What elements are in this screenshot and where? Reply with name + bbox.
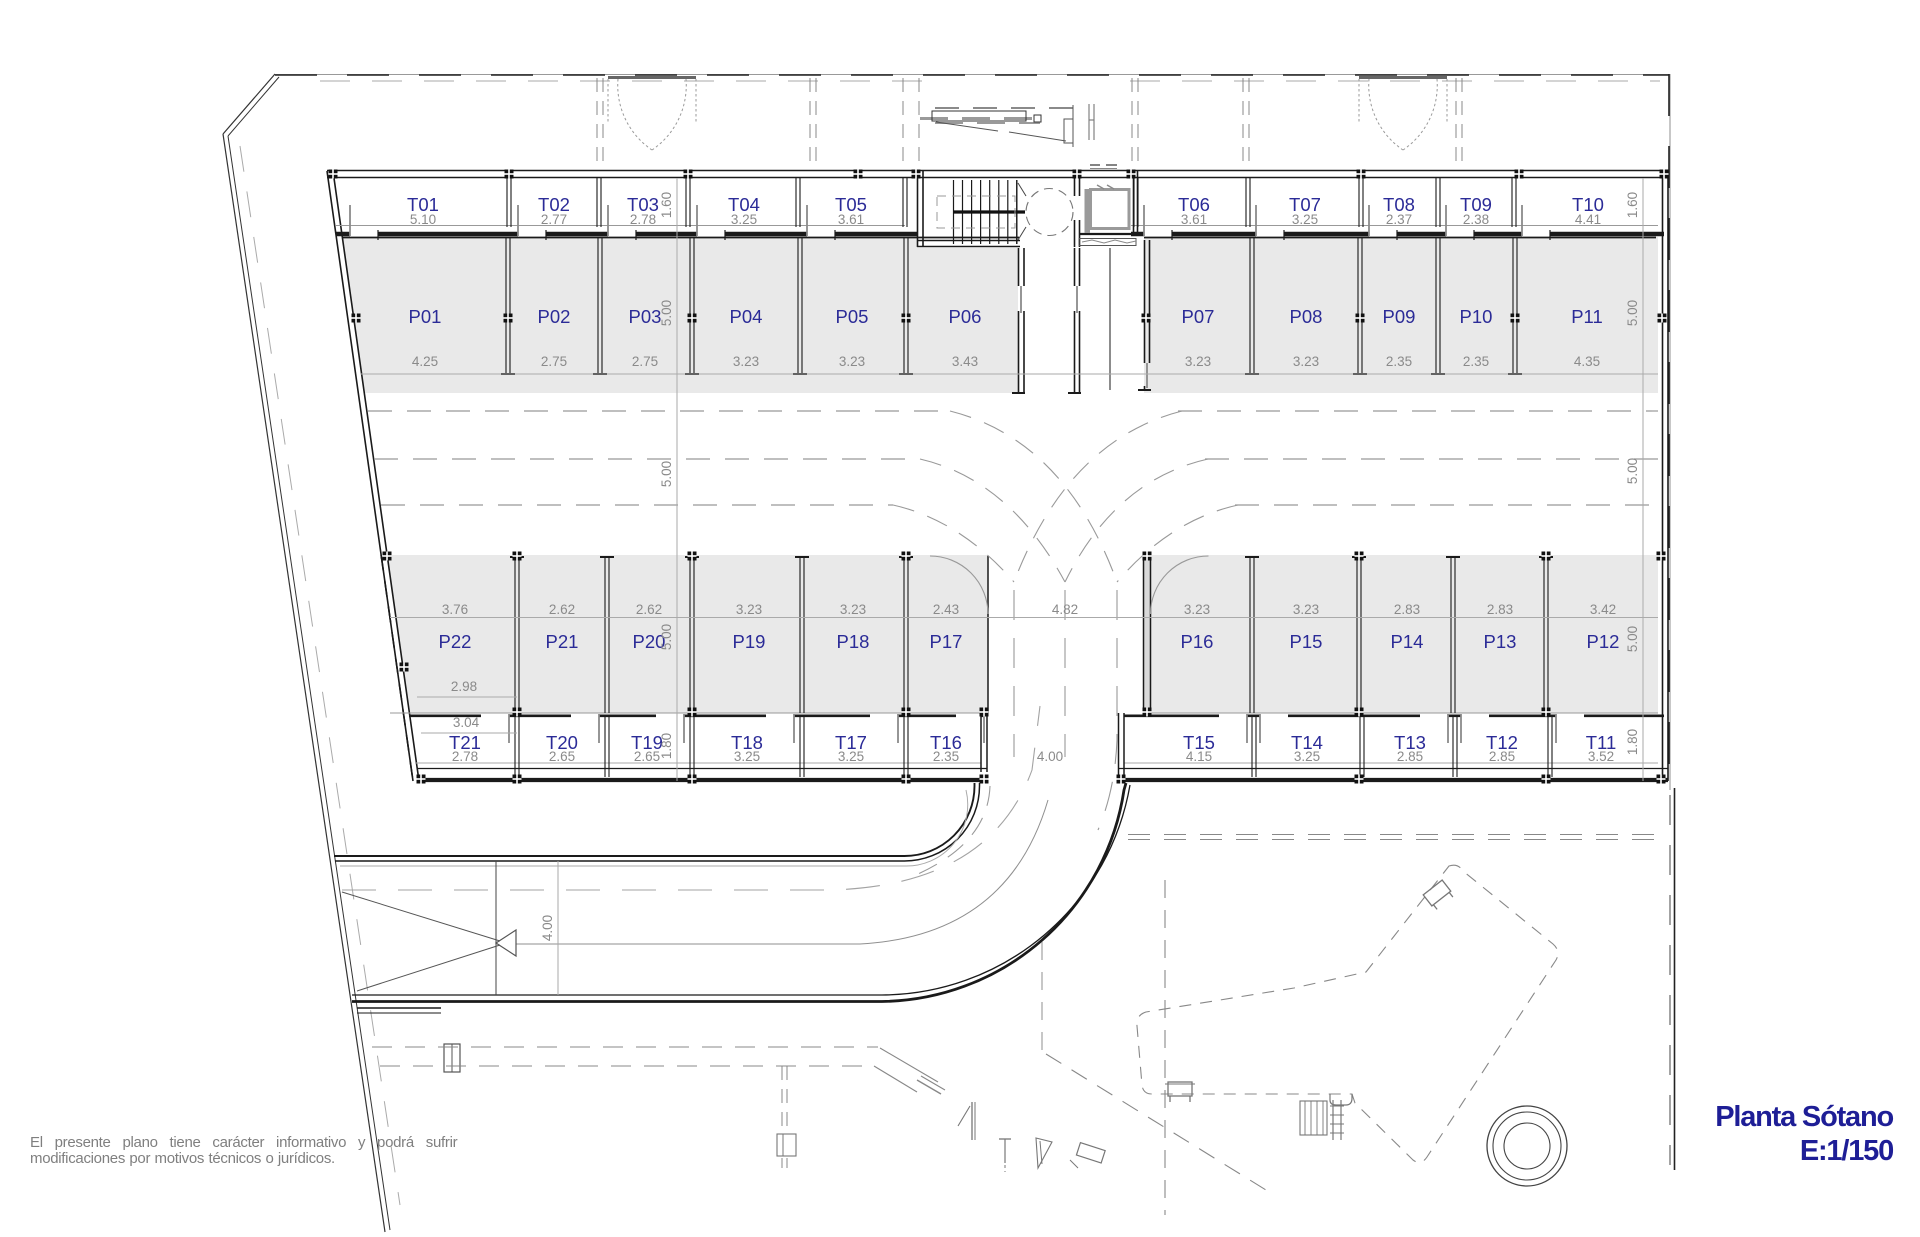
svg-text:1.60: 1.60: [659, 192, 674, 218]
svg-text:1.60: 1.60: [1625, 192, 1640, 218]
svg-text:P04: P04: [730, 306, 763, 327]
svg-text:2.35: 2.35: [1463, 354, 1489, 369]
svg-text:P17: P17: [930, 631, 963, 652]
svg-text:P10: P10: [1460, 306, 1493, 327]
svg-text:3.42: 3.42: [1590, 602, 1616, 617]
svg-text:3.23: 3.23: [839, 354, 865, 369]
svg-text:3.61: 3.61: [1181, 212, 1207, 227]
svg-text:P13: P13: [1484, 631, 1517, 652]
svg-text:3.76: 3.76: [442, 602, 468, 617]
svg-text:5.00: 5.00: [659, 624, 674, 650]
svg-text:P03: P03: [629, 306, 662, 327]
svg-text:3.23: 3.23: [840, 602, 866, 617]
svg-text:3.23: 3.23: [1293, 354, 1319, 369]
svg-text:2.38: 2.38: [1463, 212, 1489, 227]
svg-text:5.00: 5.00: [659, 300, 674, 326]
svg-text:3.25: 3.25: [1294, 749, 1320, 764]
svg-text:2.62: 2.62: [549, 602, 575, 617]
svg-text:El presente plano tiene caráct: El presente plano tiene carácter informa…: [30, 1134, 458, 1151]
svg-text:P14: P14: [1391, 631, 1424, 652]
svg-text:5.10: 5.10: [410, 212, 436, 227]
svg-text:P21: P21: [546, 631, 579, 652]
svg-text:5.00: 5.00: [659, 461, 674, 487]
svg-text:5.00: 5.00: [1625, 626, 1640, 652]
svg-text:4.82: 4.82: [1052, 602, 1078, 617]
svg-text:P19: P19: [733, 631, 766, 652]
svg-text:P02: P02: [538, 306, 571, 327]
svg-text:P18: P18: [837, 631, 870, 652]
svg-text:2.98: 2.98: [451, 679, 477, 694]
svg-text:2.62: 2.62: [636, 602, 662, 617]
svg-text:P05: P05: [836, 306, 869, 327]
svg-text:P22: P22: [439, 631, 472, 652]
svg-text:3.61: 3.61: [838, 212, 864, 227]
svg-text:P15: P15: [1290, 631, 1323, 652]
svg-text:2.65: 2.65: [549, 749, 575, 764]
svg-text:3.23: 3.23: [733, 354, 759, 369]
svg-text:4.00: 4.00: [1037, 749, 1063, 764]
svg-text:3.52: 3.52: [1588, 749, 1614, 764]
svg-text:4.25: 4.25: [412, 354, 438, 369]
svg-text:3.04: 3.04: [453, 715, 480, 730]
svg-text:P09: P09: [1383, 306, 1416, 327]
svg-text:4.41: 4.41: [1575, 212, 1601, 227]
svg-text:2.35: 2.35: [1386, 354, 1412, 369]
svg-text:3.23: 3.23: [1184, 602, 1210, 617]
svg-text:2.35: 2.35: [933, 749, 959, 764]
svg-text:2.37: 2.37: [1386, 212, 1412, 227]
svg-text:2.75: 2.75: [632, 354, 658, 369]
svg-text:2.85: 2.85: [1489, 749, 1515, 764]
svg-text:3.23: 3.23: [736, 602, 762, 617]
svg-text:2.83: 2.83: [1394, 602, 1420, 617]
svg-text:3.25: 3.25: [838, 749, 864, 764]
svg-text:1.80: 1.80: [659, 733, 674, 759]
svg-text:2.78: 2.78: [452, 749, 478, 764]
svg-text:modificaciones por motivos téc: modificaciones por motivos técnicos o ju…: [30, 1150, 335, 1167]
svg-text:5.00: 5.00: [1625, 300, 1640, 326]
svg-text:3.23: 3.23: [1185, 354, 1211, 369]
svg-text:4.00: 4.00: [540, 915, 555, 941]
svg-text:P11: P11: [1571, 306, 1603, 327]
svg-text:2.75: 2.75: [541, 354, 567, 369]
svg-text:5.00: 5.00: [1625, 458, 1640, 484]
svg-text:4.35: 4.35: [1574, 354, 1600, 369]
svg-text:3.25: 3.25: [1292, 212, 1318, 227]
svg-text:E:1/150: E:1/150: [1800, 1135, 1893, 1167]
svg-text:2.85: 2.85: [1397, 749, 1423, 764]
svg-text:4.15: 4.15: [1186, 749, 1212, 764]
svg-text:3.43: 3.43: [952, 354, 978, 369]
svg-text:1.80: 1.80: [1625, 729, 1640, 755]
svg-text:2.83: 2.83: [1487, 602, 1513, 617]
svg-text:P08: P08: [1290, 306, 1323, 327]
svg-text:3.25: 3.25: [734, 749, 760, 764]
svg-text:P07: P07: [1182, 306, 1215, 327]
svg-text:P16: P16: [1181, 631, 1214, 652]
svg-text:2.65: 2.65: [634, 749, 660, 764]
svg-text:2.78: 2.78: [630, 212, 656, 227]
svg-text:2.43: 2.43: [933, 602, 959, 617]
svg-text:P12: P12: [1587, 631, 1620, 652]
svg-text:3.25: 3.25: [731, 212, 757, 227]
svg-text:P06: P06: [949, 306, 982, 327]
svg-text:Planta Sótano: Planta Sótano: [1715, 1101, 1893, 1133]
svg-text:3.23: 3.23: [1293, 602, 1319, 617]
svg-text:2.77: 2.77: [541, 212, 567, 227]
svg-text:P01: P01: [409, 306, 442, 327]
